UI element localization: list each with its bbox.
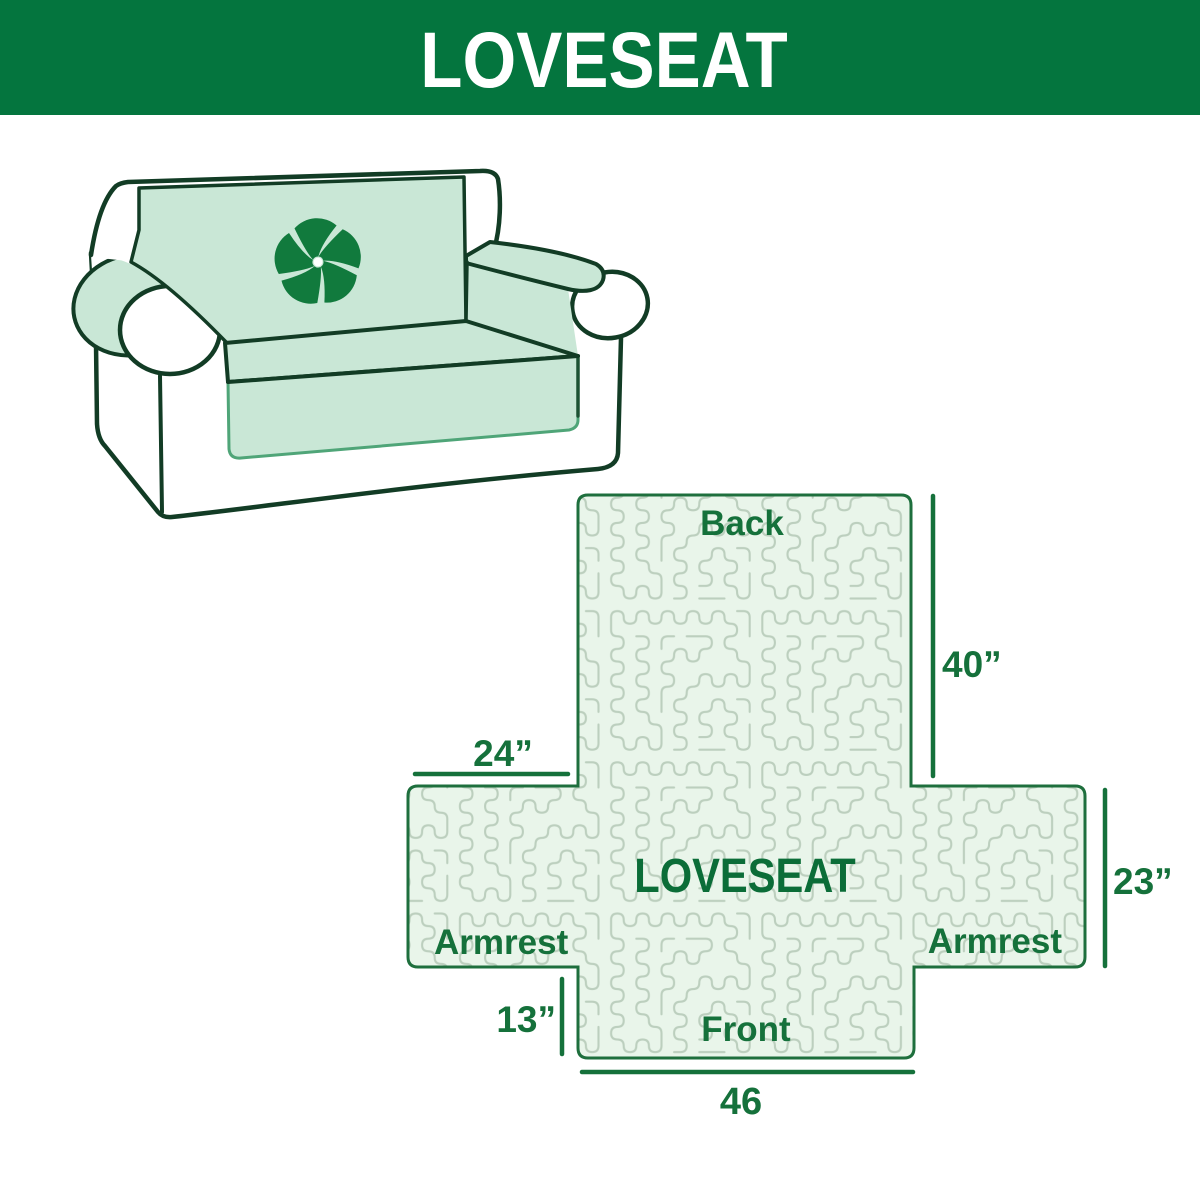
svg-text:13”: 13” [496, 999, 556, 1040]
svg-text:Armrest: Armrest [928, 922, 1063, 961]
svg-text:46: 46 [720, 1081, 762, 1123]
svg-text:23”: 23” [1113, 861, 1173, 902]
svg-text:Armrest: Armrest [434, 923, 569, 962]
svg-text:40”: 40” [942, 644, 1002, 685]
svg-text:LOVESEAT: LOVESEAT [634, 848, 855, 902]
svg-text:Front: Front [701, 1010, 791, 1049]
svg-text:Back: Back [700, 504, 784, 543]
svg-text:LOVESEAT: LOVESEAT [420, 16, 787, 104]
svg-text:24”: 24” [473, 733, 533, 774]
